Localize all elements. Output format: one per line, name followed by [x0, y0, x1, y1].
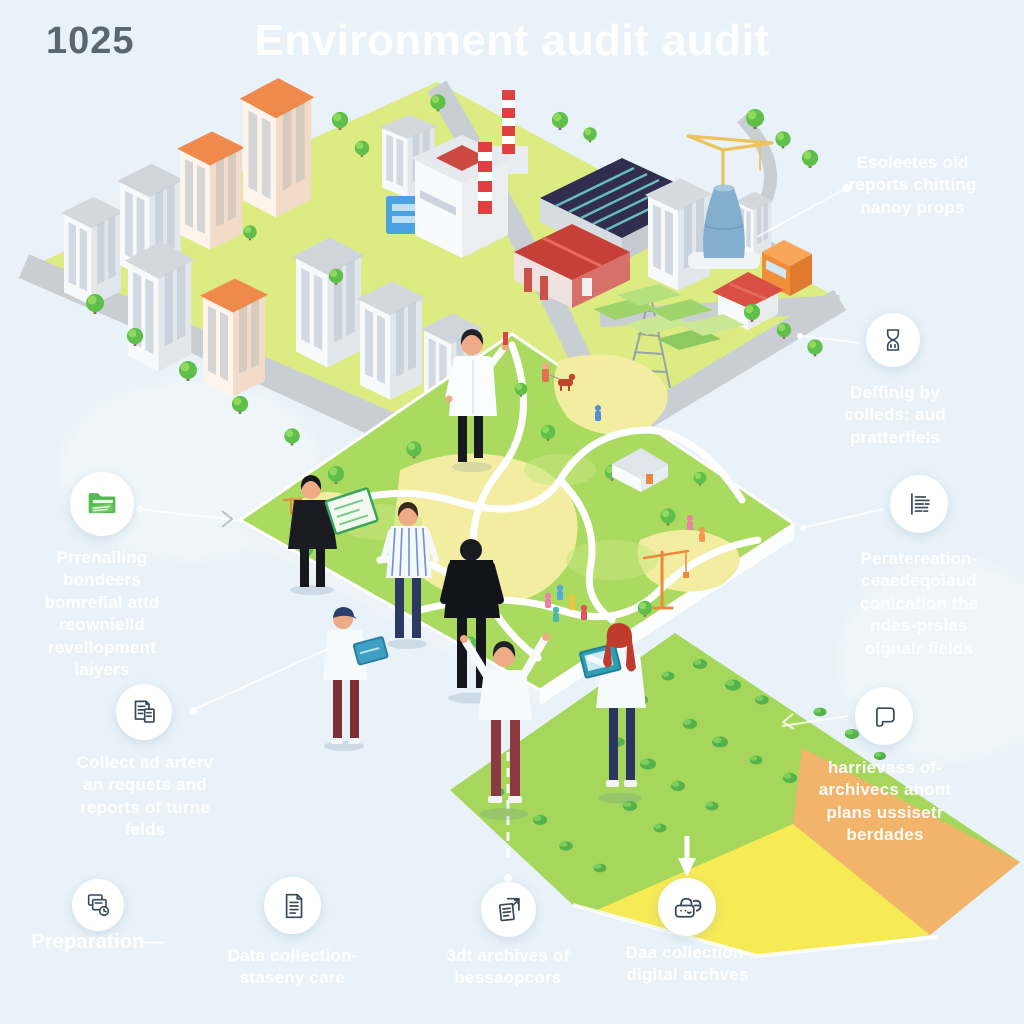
callout-collect-label: Collect ad arterv an requets and reports… — [50, 752, 240, 842]
callout-collect-circle — [116, 684, 172, 740]
callout-preparation-label: Preparation— — [8, 929, 188, 955]
document-text-icon — [276, 889, 310, 923]
callout-report-circle — [890, 475, 948, 533]
page-title: Environment audit audit — [0, 16, 1024, 66]
surveyor-cap-tablet-figure — [323, 607, 388, 751]
callout-data-collection-circle — [264, 877, 321, 934]
callout-folder-circle — [70, 472, 134, 536]
striped-chimney — [502, 90, 515, 154]
callout-archives-circle — [481, 882, 536, 937]
callout-speech-label: harrievass of- archivecs anont plans uss… — [800, 757, 970, 847]
document-arrow-icon — [492, 893, 526, 927]
callout-explore-label: Esoleetes oid reports chitting nanoy pro… — [825, 152, 1000, 219]
satchel-lock-icon — [669, 889, 705, 925]
callout-digital-label: Daa collection- digital archves — [600, 942, 775, 987]
callout-hourglass-label: Deffinig by colleds: aud pratterfiels — [815, 382, 975, 449]
white-factory — [411, 135, 512, 258]
callout-archives-label: 3dt archives of bessaopcors — [418, 945, 598, 990]
callout-speech-circle — [855, 687, 913, 745]
hourglass-icon — [877, 324, 909, 356]
report-lines-icon — [902, 487, 936, 521]
callout-data-collection-label: Data collection- staseny care — [205, 945, 380, 990]
callout-report-label: Peratereation- ceaedeqoiaud conication t… — [830, 548, 1008, 660]
callout-folder-label: Prrenalling bondeers bomrefial attd reow… — [18, 547, 186, 682]
callout-hourglass-circle — [866, 313, 920, 367]
callout-digital-circle — [658, 878, 716, 936]
folders-clock-icon — [82, 889, 114, 921]
striped-chimney — [478, 142, 492, 214]
documents-icon — [127, 695, 161, 729]
callout-preparation-circle — [72, 879, 124, 931]
speech-bubble-icon — [867, 699, 901, 733]
green-folder-icon — [82, 484, 122, 524]
